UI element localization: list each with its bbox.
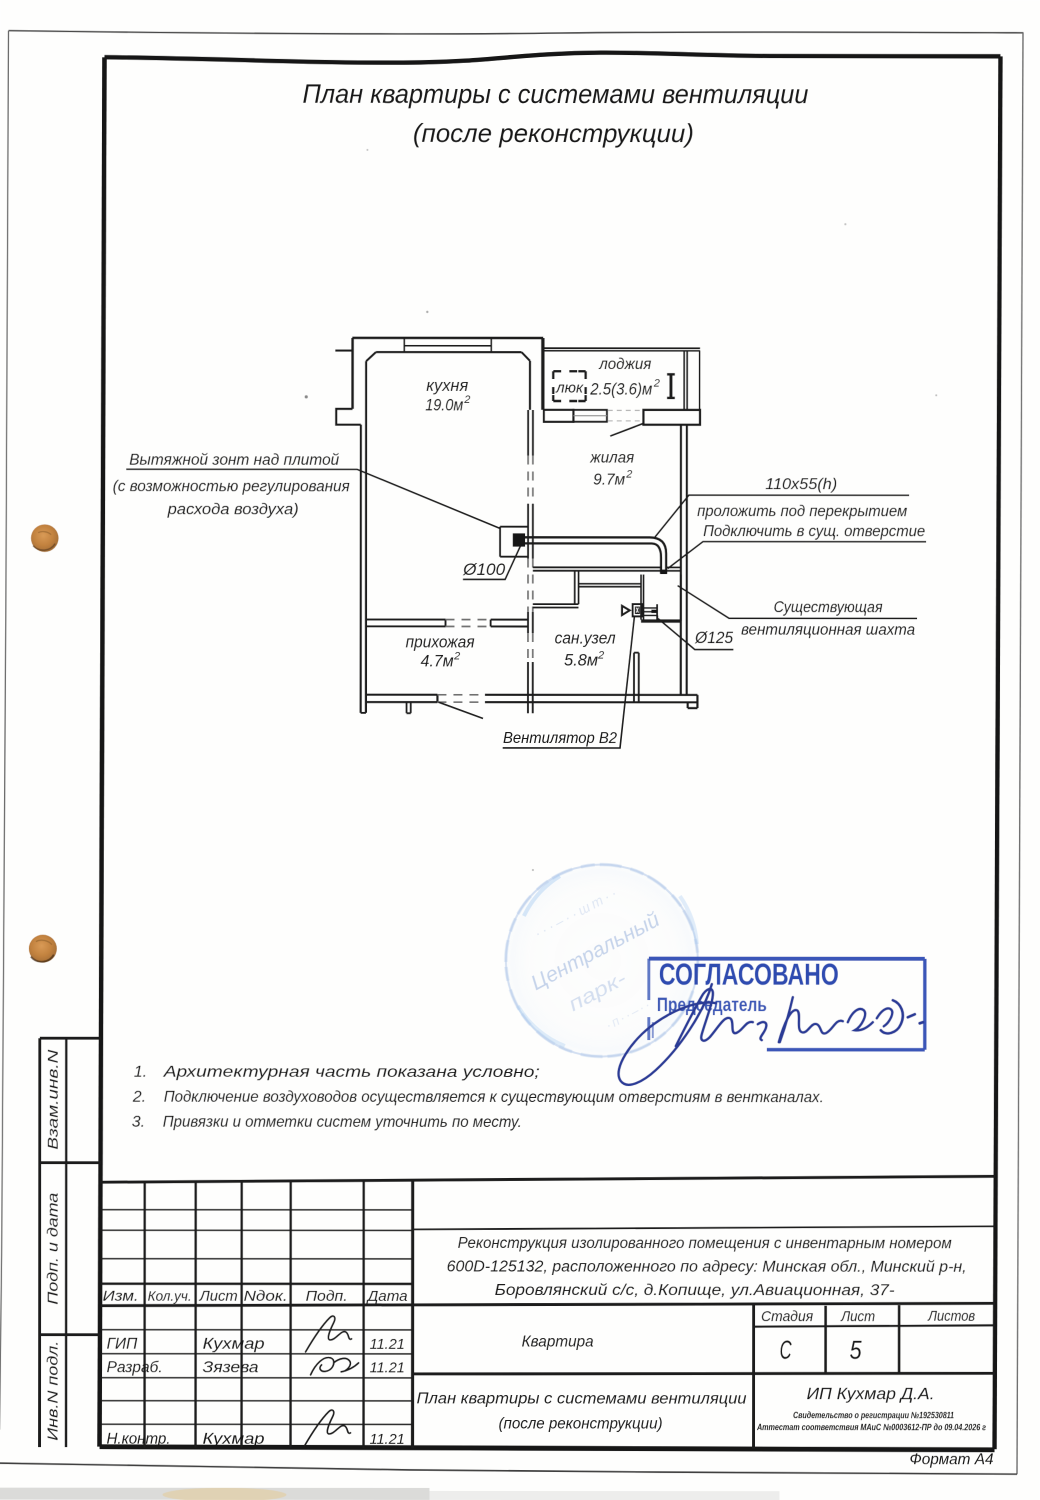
svg-text:СОГЛАСОВАНО: СОГЛАСОВАНО [659, 957, 839, 992]
svg-text:5: 5 [850, 1335, 862, 1365]
svg-text:(с возможностью регулирования: (с возможностью регулирования [113, 478, 350, 495]
svg-text:Аттестат соответствия МАиС №00: Аттестат соответствия МАиС №0003612-ПР д… [756, 1422, 986, 1432]
svg-text:11.21: 11.21 [370, 1432, 405, 1448]
svg-text:4.7м: 4.7м [421, 652, 454, 670]
svg-text:расхода воздуха): расхода воздуха) [167, 501, 299, 518]
svg-text:Существующая: Существующая [774, 599, 883, 616]
svg-text:Лист: Лист [840, 1309, 875, 1325]
svg-text:Зязева: Зязева [203, 1359, 259, 1376]
svg-text:Свидетельство о регистрации №1: Свидетельство о регистрации №192530811 [793, 1410, 954, 1420]
svg-text:11.21: 11.21 [370, 1337, 405, 1353]
svg-text:Nдок.: Nдок. [244, 1289, 288, 1305]
svg-text:2: 2 [597, 650, 604, 662]
svg-text:2: 2 [625, 469, 632, 481]
svg-text:Взам.инв.N: Взам.инв.N [45, 1049, 62, 1149]
svg-text:Ø100: Ø100 [462, 561, 506, 579]
svg-text:Квартира: Квартира [522, 1334, 594, 1351]
svg-text:Вентилятор В2: Вентилятор В2 [503, 730, 617, 747]
svg-text:110х55(h): 110х55(h) [765, 476, 837, 493]
svg-text:ГИП: ГИП [107, 1336, 139, 1353]
svg-text:Листов: Листов [927, 1309, 975, 1325]
svg-text:План квартиры с системами вент: План квартиры с системами вентиляции [302, 79, 808, 109]
svg-text:5.8м: 5.8м [564, 652, 598, 670]
svg-text:Кол.уч.: Кол.уч. [148, 1289, 192, 1304]
svg-text:вентиляционная шахта: вентиляционная шахта [741, 622, 915, 639]
svg-text:Разраб.: Разраб. [107, 1359, 163, 1376]
svg-text:2.: 2. [132, 1089, 146, 1106]
svg-text:люк: люк [555, 381, 584, 397]
svg-text:Лист: Лист [199, 1289, 238, 1305]
svg-text:2: 2 [453, 650, 460, 662]
svg-text:С: С [780, 1335, 792, 1365]
svg-text:Реконструкция изолированного п: Реконструкция изолированного помещения с… [458, 1235, 952, 1252]
svg-text:11.21: 11.21 [370, 1360, 405, 1376]
svg-text:(после реконструкции): (после реконструкции) [413, 118, 694, 148]
svg-text:Подключение воздуховодов осуще: Подключение воздуховодов осуществляется … [164, 1089, 824, 1106]
svg-text:лоджия: лоджия [598, 356, 651, 373]
svg-text:Вытяжной зонт над плитой: Вытяжной зонт над плитой [129, 452, 339, 469]
svg-text:сан.узел: сан.узел [555, 630, 616, 648]
svg-text:Подп. и дата: Подп. и дата [45, 1193, 62, 1305]
svg-text:Ø125: Ø125 [694, 629, 734, 647]
svg-text:проложить под перекрытием: проложить под перекрытием [697, 503, 907, 520]
svg-text:2: 2 [653, 378, 660, 390]
svg-text:Подключить в сущ. отверстие: Подключить в сущ. отверстие [703, 523, 925, 540]
svg-text:Кухмар: Кухмар [203, 1431, 265, 1448]
svg-text:1.: 1. [134, 1064, 147, 1081]
svg-text:9.7м: 9.7м [593, 472, 625, 489]
svg-text:прихожая: прихожая [406, 633, 475, 651]
svg-text:жилая: жилая [589, 450, 634, 467]
svg-text:Н.контр.: Н.контр. [107, 1431, 171, 1448]
svg-text:Подп.: Подп. [306, 1289, 348, 1305]
svg-text:Дата: Дата [366, 1289, 408, 1305]
svg-text:Стадия: Стадия [761, 1309, 813, 1325]
svg-text:кухня: кухня [426, 377, 468, 395]
svg-text:2: 2 [463, 394, 470, 406]
svg-text:(после реконструкции): (после реконструкции) [499, 1415, 663, 1432]
svg-text:3.: 3. [132, 1114, 145, 1131]
svg-text:600D-125132, расположенного по: 600D-125132, расположенного по адресу: М… [447, 1258, 967, 1275]
svg-text:19.0м: 19.0м [425, 396, 463, 414]
svg-text:Инв.N подл.: Инв.N подл. [45, 1341, 62, 1441]
svg-text:Привязки и отметки систем уточ: Привязки и отметки систем уточнить по ме… [163, 1114, 522, 1131]
svg-text:План квартиры с системами вент: План квартиры с системами вентиляции [417, 1390, 747, 1407]
svg-text:ИП Кухмар Д.А.: ИП Кухмар Д.А. [807, 1385, 935, 1403]
svg-text:Изм.: Изм. [103, 1289, 139, 1305]
svg-text:Боровлянский с/с, д.Копище, ул: Боровлянский с/с, д.Копище, ул.Авиационн… [495, 1282, 895, 1299]
svg-text:Кухмар: Кухмар [203, 1336, 265, 1353]
svg-text:Формат А4: Формат А4 [909, 1451, 993, 1468]
svg-text:Архитектурная часть показана у: Архитектурная часть показана условно; [163, 1064, 540, 1081]
svg-text:2.5(3.6)м: 2.5(3.6)м [589, 381, 652, 399]
